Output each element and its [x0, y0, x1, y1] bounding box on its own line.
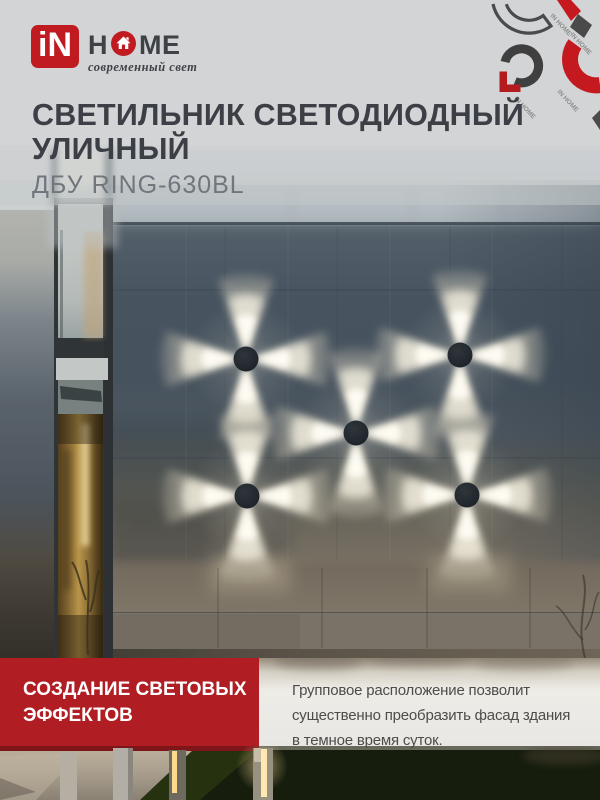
- svg-text:IN HOME: IN HOME: [556, 89, 581, 115]
